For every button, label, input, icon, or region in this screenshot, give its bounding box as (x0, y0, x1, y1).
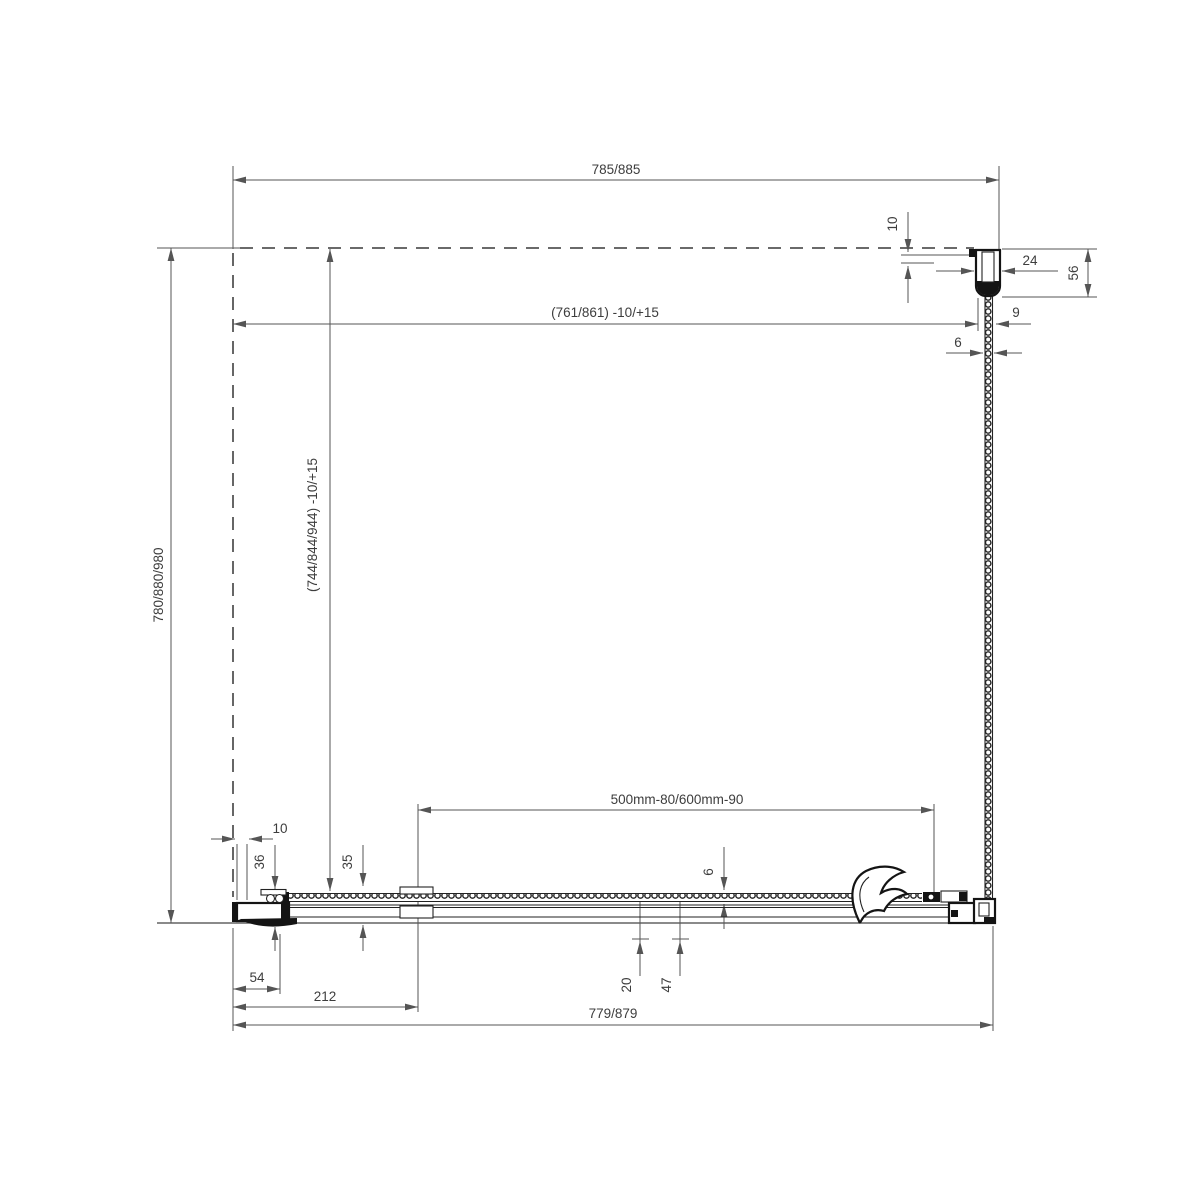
wall-outline-dashed (157, 166, 974, 897)
dim-side-depth-label: 780/880/980 (151, 547, 166, 622)
fixed-panel-glass (985, 262, 993, 902)
drawing-canvas: 785/885 (761/861) -10/+15 780/880/980 (7… (0, 0, 1200, 1200)
dim-profile-width-label: 24 (1022, 253, 1038, 268)
dim-glass-seals-label: 9 (1012, 305, 1020, 320)
dim-35-label: 35 (340, 854, 355, 869)
dim-top-width-adjust-label: (761/861) -10/+15 (551, 305, 659, 320)
dim-47-label: 47 (659, 977, 674, 992)
dim-panel-glass-thickness-label: 6 (954, 335, 962, 350)
dim-212-label: 212 (314, 989, 337, 1004)
corner-connector (974, 899, 995, 923)
wall-profile-top-right (969, 249, 1000, 296)
hinge-clamp (400, 887, 433, 918)
dim-top-width-label: 785/885 (592, 162, 641, 177)
dim-wall-gap-label: 10 (272, 821, 287, 836)
technical-drawing: 785/885 (761/861) -10/+15 780/880/980 (7… (0, 0, 1200, 1200)
dim-54-label: 54 (249, 970, 265, 985)
dim-profile-depth-label: 56 (1066, 265, 1081, 280)
dim-entry-width-label: 500mm-80/600mm-90 (611, 792, 744, 807)
door-handle (852, 867, 907, 923)
dim-side-depth-adjust-label: (744/844/944) -10/+15 (305, 458, 320, 592)
dim-20-label: 20 (619, 977, 634, 992)
dim-profile-offset-label: 10 (885, 216, 900, 231)
dim-bottom-width-label: 779/879 (589, 1006, 638, 1021)
dim-36-label: 36 (252, 854, 267, 869)
dim-door-glass-thickness-label: 6 (701, 868, 716, 876)
door-leaf-assembly (285, 893, 948, 917)
wall-profile-bottom-left (232, 890, 297, 927)
